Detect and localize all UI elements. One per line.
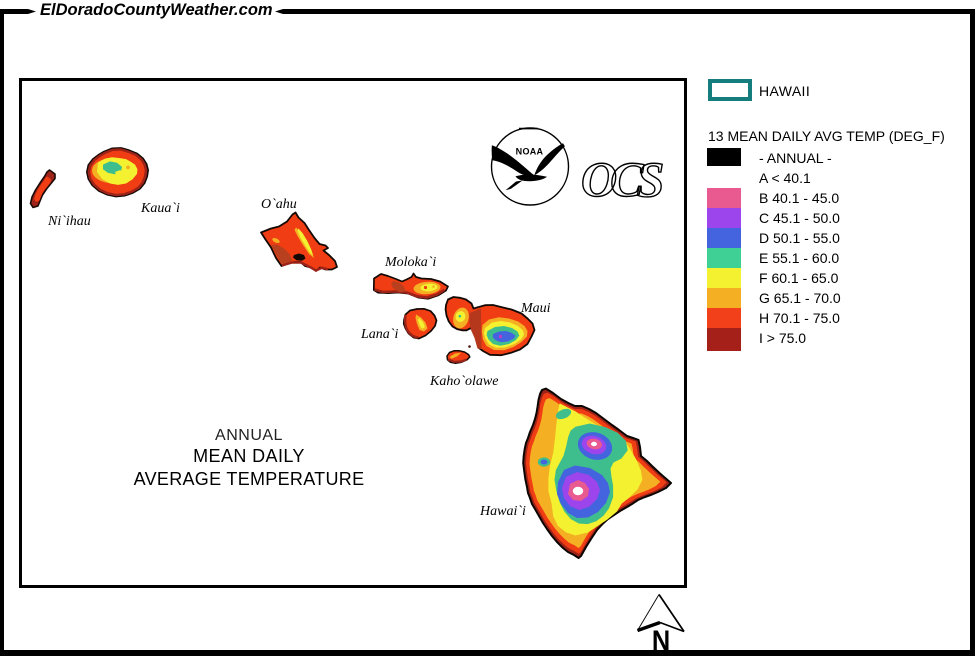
svg-text:NOAA: NOAA xyxy=(516,147,544,157)
svg-text:OCS: OCS xyxy=(581,151,662,207)
svg-text:N: N xyxy=(652,624,670,657)
